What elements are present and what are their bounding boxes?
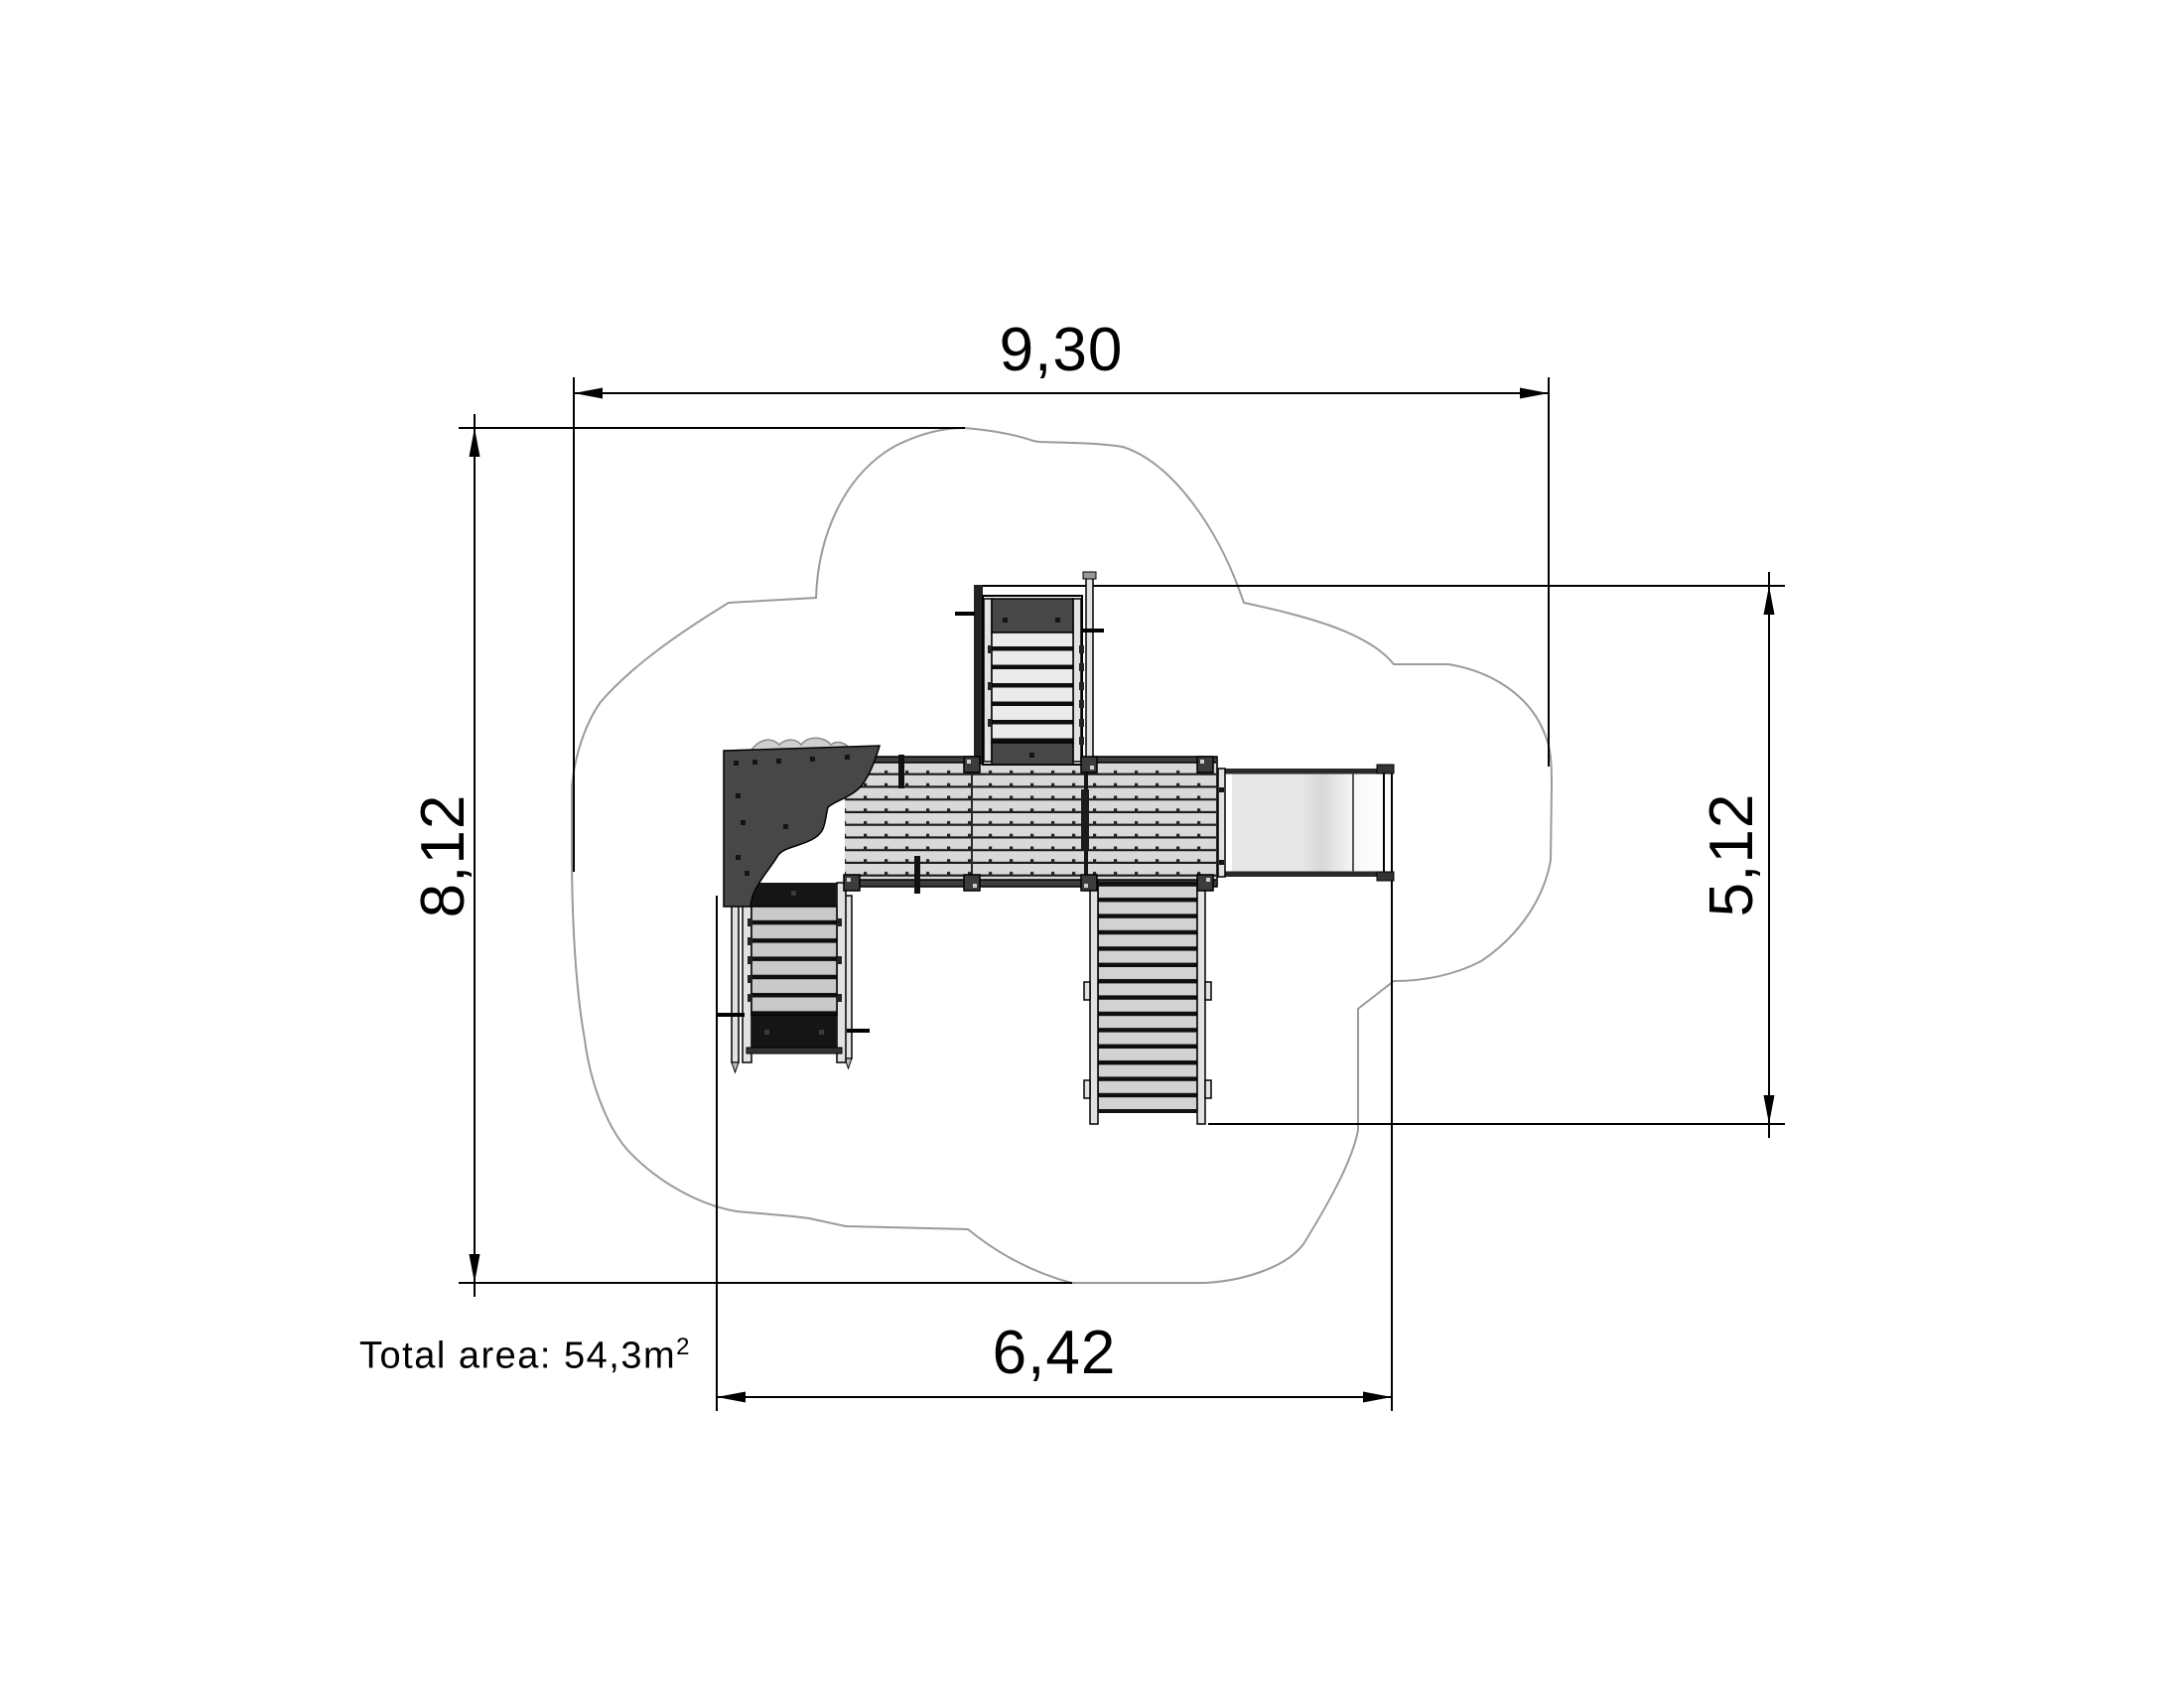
stair-stringer-left	[1090, 882, 1098, 1124]
slide-end-cap	[1377, 765, 1394, 774]
inner-rail-left	[743, 883, 751, 1062]
stair-top-edge	[1098, 882, 1197, 886]
module-rungs	[751, 907, 837, 1016]
dimension-value-right-height: 5,12	[1700, 746, 1765, 964]
plan-drawing-canvas: 9,30 8,12 5,12 6,42 Total area: 54,3m2	[0, 0, 2184, 1688]
bolt-dot	[819, 1030, 824, 1035]
arrowhead-right	[1520, 388, 1549, 399]
bolt-dot	[1029, 753, 1034, 758]
stringer-cleat	[1084, 982, 1090, 1000]
deck-joint-plate	[1081, 789, 1089, 851]
bolt-dot	[764, 1030, 769, 1035]
bolt-dot	[791, 891, 796, 896]
ladder-rungs	[992, 633, 1073, 743]
dimension-value-bottom-width: 6,42	[945, 1321, 1163, 1386]
bridge-walkway	[845, 755, 1217, 894]
bolt-dot	[1219, 787, 1224, 792]
ladder-inner-rail-left	[984, 599, 992, 762]
bolt-dot	[1055, 618, 1060, 623]
slide-end-bar	[1384, 771, 1392, 875]
ladder-left-rail	[974, 585, 983, 765]
total-area-label: Total area: 54,3m2	[359, 1325, 689, 1379]
arrowhead-bottom	[1764, 1095, 1775, 1124]
stringer-cleat	[1205, 1080, 1211, 1098]
total-area-text: Total area: 54,3m	[359, 1336, 676, 1377]
stair-treads	[1098, 886, 1197, 1111]
outer-pole-left	[732, 902, 739, 1062]
arrowhead-left	[717, 1392, 746, 1403]
arrowhead-bottom	[470, 1254, 480, 1283]
ladder-top-panel	[992, 599, 1073, 633]
module-bottom-panel	[751, 1016, 837, 1048]
tall-post	[1086, 577, 1093, 760]
playground-structure	[717, 572, 1394, 1124]
stair-stringer-right	[1197, 882, 1205, 1124]
arrowhead-top	[1764, 586, 1775, 615]
arrowhead-top	[470, 428, 480, 457]
southwest-ladder-module	[717, 883, 870, 1072]
stringer-cleat	[1084, 1080, 1090, 1098]
pole-tip	[732, 1062, 739, 1072]
tall-post-cap	[1083, 572, 1096, 579]
plan-drawing	[0, 0, 2184, 1688]
bolt-dot	[1219, 860, 1224, 865]
dimension-value-top-width: 9,30	[952, 318, 1170, 383]
slide-top-rail	[1217, 769, 1388, 774]
slide-bed	[1232, 771, 1388, 875]
slide	[1217, 765, 1394, 881]
stringer-cleat	[1205, 982, 1211, 1000]
inner-rail-right	[837, 883, 846, 1062]
slide-end-cap	[1377, 872, 1394, 881]
slide-bottom-rail	[1217, 872, 1388, 878]
south-stairs	[1084, 882, 1211, 1124]
arrowhead-right	[1363, 1392, 1392, 1403]
module-base-plate	[747, 1048, 842, 1054]
dimension-value-left-height: 8,12	[411, 747, 477, 965]
bolt-dot	[1003, 618, 1008, 623]
north-ladder-module	[955, 572, 1104, 765]
arrowhead-left	[574, 388, 603, 399]
total-area-exponent: 2	[676, 1334, 689, 1360]
stair-bottom-edge	[1098, 1109, 1197, 1113]
